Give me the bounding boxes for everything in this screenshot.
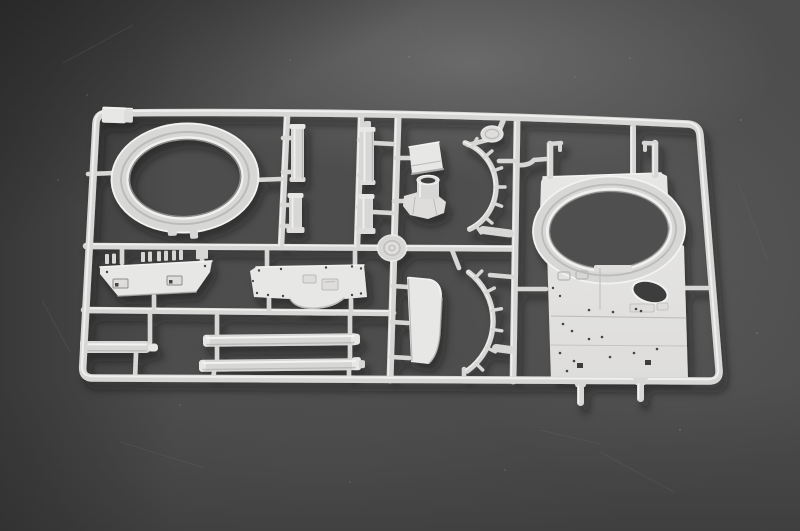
ring-gate-nub-1 (168, 227, 177, 236)
long-rod-1 (203, 333, 360, 347)
short-rod (80, 340, 158, 354)
hatch-plate (409, 142, 443, 174)
cylinder-4 (358, 194, 376, 234)
belly-plate-hatch-1 (303, 275, 316, 283)
ring-gate-nub-2 (190, 230, 198, 238)
cylinder-3 (360, 121, 376, 185)
photo-stage (0, 0, 800, 531)
collar-bore-hole (421, 178, 435, 184)
small-disc (481, 126, 503, 142)
sprue-photo (0, 0, 800, 531)
belly-plate-hatch-2 (322, 279, 338, 290)
runner-roof-drop (632, 127, 634, 176)
turret-roof-panel (531, 143, 688, 381)
cylinder-2 (287, 193, 305, 233)
molding-tab (102, 107, 134, 124)
cylinder-1 (290, 124, 306, 182)
hub-disc (378, 235, 407, 261)
curved-shield (407, 277, 442, 364)
